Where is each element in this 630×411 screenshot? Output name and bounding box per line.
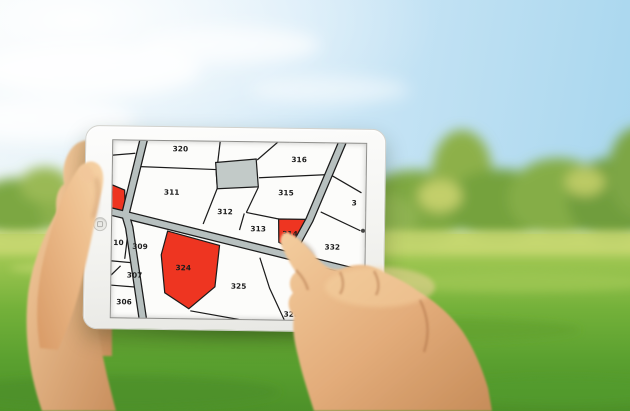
left-thumb: [37, 161, 103, 350]
front-hands: [0, 0, 630, 411]
right-hand: [280, 232, 492, 411]
scene: 320 311 312 313 314 315 316 332 3 10 309…: [0, 0, 630, 411]
right-hand-outline: [280, 232, 492, 411]
